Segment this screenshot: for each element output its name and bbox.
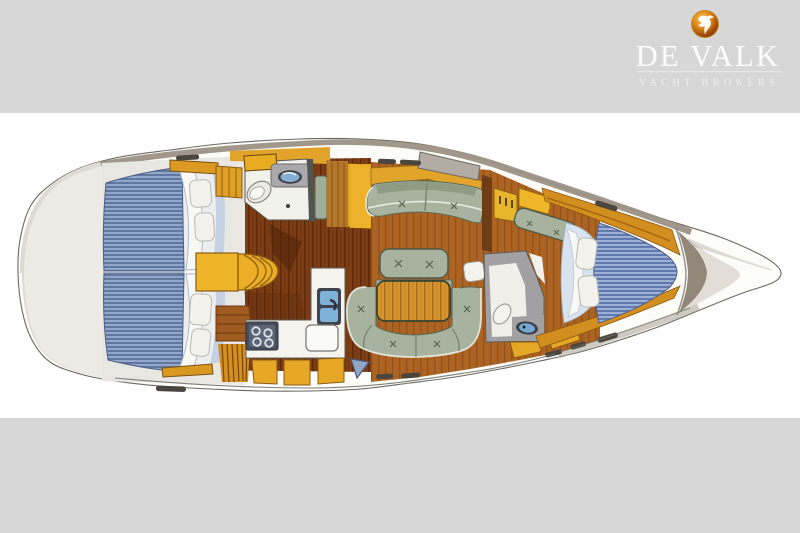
svg-text:DE VALK: DE VALK (636, 39, 781, 73)
svg-text:YACHT BROKERS: YACHT BROKERS (639, 78, 779, 89)
